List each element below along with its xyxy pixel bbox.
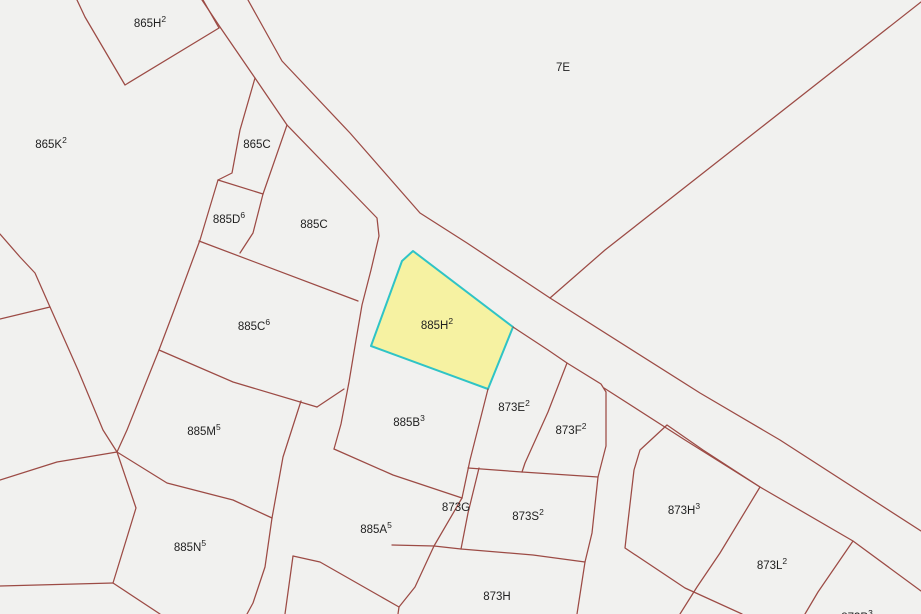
parcel-label-7e: 7E (556, 62, 570, 74)
parcel-label-873h: 873H (483, 591, 511, 603)
parcel-label-885c: 885C (300, 219, 328, 231)
cadastral-map-viewport[interactable]: 865H27E865K2865C885D6885C885C6885H2885M5… (0, 0, 921, 614)
parcel-label-865c: 865C (243, 139, 271, 151)
cadastral-map: 865H27E865K2865C885D6885C885C6885H2885M5… (0, 0, 921, 614)
parcel-label-873g: 873G (442, 502, 470, 514)
